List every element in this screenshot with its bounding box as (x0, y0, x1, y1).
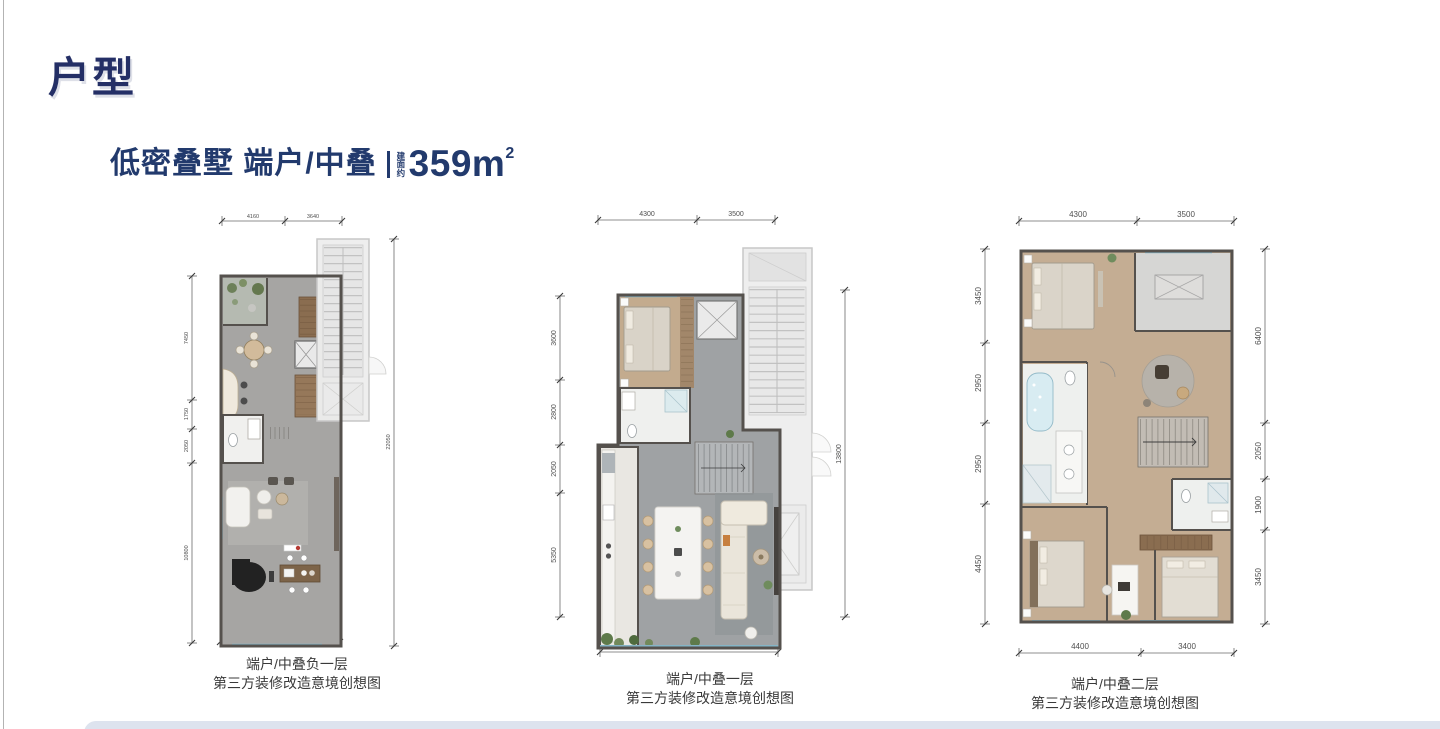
dimension-label: 3400 (1178, 642, 1196, 651)
living-room (715, 493, 779, 639)
next-slide-edge (84, 721, 1440, 729)
plan-caption-line2: 第三方装修改造意境创想图 (950, 694, 1280, 713)
dimension-label: 2950 (974, 374, 983, 392)
reference-plaque (284, 545, 301, 551)
dimension-label: 3600 (551, 330, 558, 346)
bedroom-bottom-right (1162, 557, 1218, 617)
dimension-label: 4450 (974, 555, 983, 573)
slide-page: 户型 低密叠墅 端户/中叠 建面约 359m2 4160 3640 7450 1 (0, 0, 1440, 729)
dimension-label: 3640 (307, 214, 319, 220)
area-value: 359m2 (409, 146, 515, 182)
floor-plan-first-floor-drawing: 4300 3500 3600 2800 2050 5350 13800 7800 (545, 205, 875, 660)
plan-caption-line2: 第三方装修改造意境创想图 (545, 689, 875, 708)
dimension-label: 3500 (728, 211, 744, 218)
dimension-label: 4400 (1071, 642, 1089, 651)
bathroom-left (1023, 364, 1087, 503)
storage-room (1135, 252, 1232, 331)
plan-basement: 4160 3640 7450 1750 2050 10800 22050 780… (172, 209, 422, 693)
dimension-label: 4160 (247, 214, 259, 220)
plant (1121, 610, 1131, 620)
bathroom (223, 415, 263, 463)
plan-first-floor: 4300 3500 3600 2800 2050 5350 13800 7800 (545, 205, 875, 708)
dimension-label: 2050 (551, 461, 558, 477)
dimension-label: 3450 (1254, 568, 1263, 586)
dimension-label: 3500 (1177, 210, 1195, 219)
dimension-label: 2950 (974, 455, 983, 473)
bathroom-right (1172, 479, 1232, 530)
dimension-label: 22050 (386, 434, 392, 449)
private-elevator (295, 341, 317, 368)
plan-caption-line1: 端户/中叠一层 (545, 670, 875, 689)
dimension-label: 4300 (1069, 210, 1087, 219)
floor-plan-basement-drawing: 4160 3640 7450 1750 2050 10800 22050 780… (172, 209, 422, 650)
bedroom-bottom-left (1023, 531, 1084, 617)
dimension-label: 4300 (639, 211, 655, 218)
storage-cabinet (295, 375, 317, 417)
dimension-label: 2050 (1254, 442, 1263, 460)
stairs (695, 442, 753, 494)
dimension-label: 7450 (184, 332, 190, 344)
media-wall (334, 477, 339, 551)
dimension-label: 1900 (1254, 496, 1263, 514)
dimension-label: 2050 (184, 440, 190, 452)
area-prefix: 建面约 (397, 152, 407, 178)
door-swing (812, 457, 831, 476)
public-stair-core (317, 239, 386, 421)
family-lounge (1142, 355, 1194, 407)
lounge (226, 477, 308, 545)
door-swing (812, 433, 831, 452)
page-title: 户型 (48, 44, 136, 105)
dimension-label: 10800 (184, 545, 190, 560)
dimension-label: 3450 (974, 287, 983, 305)
bathroom (620, 388, 690, 443)
plan-second-floor: 4300 3500 3450 2950 2950 4450 6400 2050 … (950, 205, 1280, 713)
wardrobe-shelf (1140, 535, 1212, 550)
kitchen (600, 447, 638, 646)
courtyard (223, 278, 267, 325)
door-swing (369, 357, 386, 374)
plan-caption-line1: 端户/中叠负一层 (172, 655, 422, 674)
dimension-label: 6400 (1254, 327, 1263, 345)
page-left-border (3, 0, 4, 729)
plant (726, 430, 734, 438)
dimension-label: 13800 (836, 444, 843, 464)
dimension-label: 5350 (551, 547, 558, 563)
wine-shelves (299, 297, 317, 337)
floor-plan-second-floor-drawing: 4300 3500 3450 2950 2950 4450 6400 2050 … (950, 205, 1280, 657)
headline-divider (387, 151, 390, 178)
private-elevator (697, 301, 737, 339)
dimension-label: 2800 (551, 404, 558, 420)
area-superscript: 2 (505, 145, 514, 162)
plan-caption-line2: 第三方装修改造意境创想图 (172, 674, 422, 693)
plan-caption-line1: 端户/中叠二层 (950, 675, 1280, 694)
stairs (1138, 417, 1208, 467)
bedroom (620, 296, 694, 388)
unit-headline: 低密叠墅 端户/中叠 建面约 359m2 (110, 146, 515, 182)
dimension-label: 1750 (184, 408, 190, 420)
unit-type-text: 低密叠墅 端户/中叠 (110, 146, 377, 182)
